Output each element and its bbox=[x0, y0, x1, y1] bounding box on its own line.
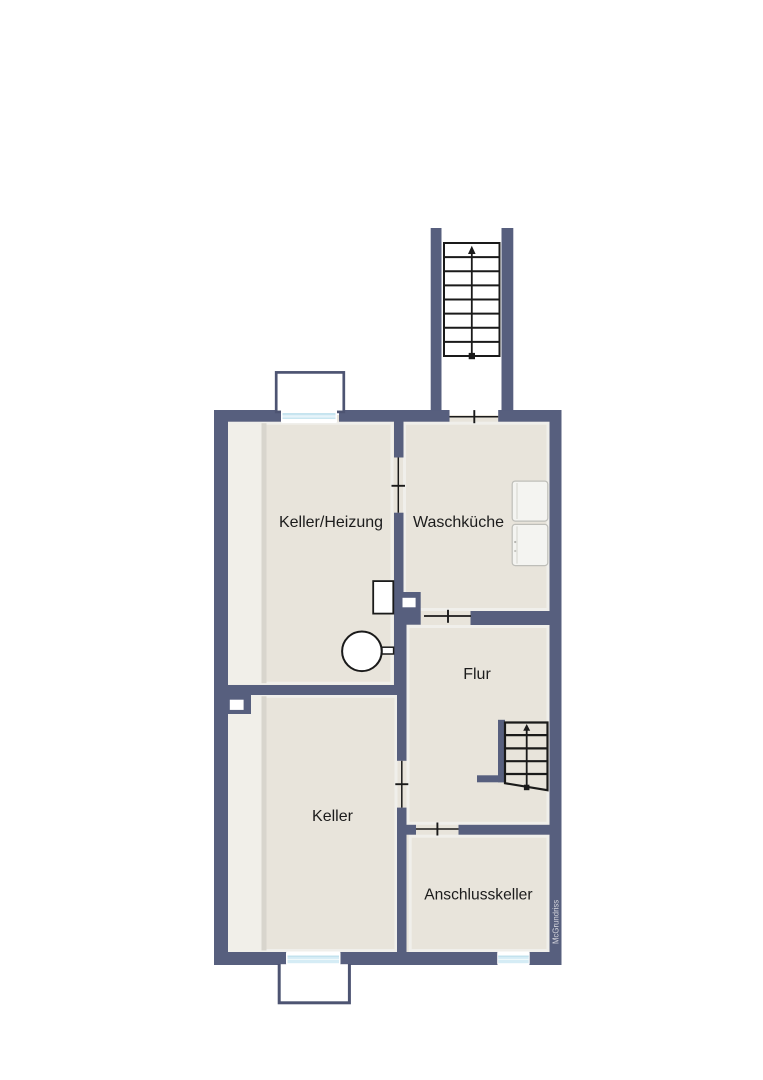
svg-text:Anschlusskeller: Anschlusskeller bbox=[424, 887, 532, 904]
svg-text:Waschküche: Waschküche bbox=[413, 514, 504, 531]
svg-text:Keller/Heizung: Keller/Heizung bbox=[279, 514, 383, 531]
svg-text:McGrundriss: McGrundriss bbox=[551, 900, 560, 944]
svg-text:Flur: Flur bbox=[463, 666, 491, 683]
svg-text:Keller: Keller bbox=[312, 808, 354, 825]
